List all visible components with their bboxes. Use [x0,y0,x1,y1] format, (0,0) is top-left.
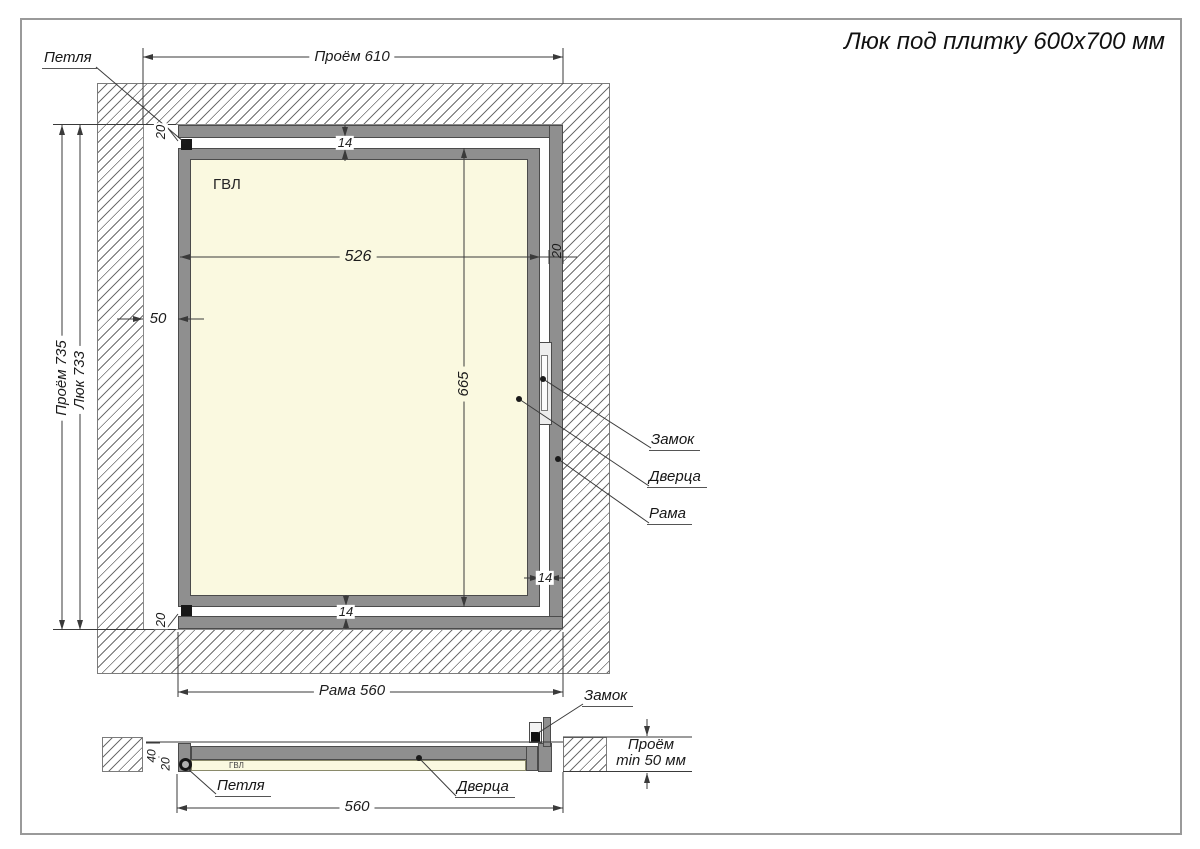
frame-bottom-bar [178,616,563,629]
section-callout-hinge: Петля [215,777,271,797]
callout-frame: Рама [647,505,692,525]
section-dim-total-depth: 40 [145,747,158,764]
dim-frame-width: Рама 560 [314,683,390,700]
section-dim-frame-width: 560 [339,799,374,816]
frame-top-bar [178,125,563,138]
section-dim-door-depth: 20 [159,755,172,772]
section-door-end-post [526,746,538,771]
lock-latch-plate [541,355,548,411]
hinge-bottom [181,605,192,616]
dim-door-width: 526 [340,248,377,266]
section-door-bar [191,746,538,760]
section-gvl-label: ГВЛ [229,761,244,770]
dim-side-gap: 50 [145,311,172,328]
section-dim-opening-depth-line2: min 50 мм [603,753,699,769]
drawing-title: Люк под плитку 600x700 мм [700,28,1165,56]
section-dim-opening-depth: Проём min 50 мм [603,737,699,769]
dim-opening-width: Проём 610 [309,49,394,66]
section-callout-lock: Замок [582,687,633,707]
dim-top-offset: 20 [154,123,168,141]
dim-top-gap: 14 [336,136,354,150]
dim-opening-height: Проём 735 [54,335,71,420]
dim-frame-profile-width: 20 [550,242,564,260]
dim-right-gap: 14 [536,571,554,585]
section-hinge [179,758,192,771]
callout-hinge: Петля [42,49,98,69]
dim-door-height: 665 [456,366,473,401]
drawing-sheet: Люк под плитку 600x700 мм [0,0,1200,849]
dim-bottom-gap: 14 [337,605,355,619]
callout-door: Дверца [647,468,707,488]
dim-hatch-height: Люк 733 [72,346,89,414]
section-wall-right [563,737,607,772]
hinge-top [181,139,192,150]
section-callout-door: Дверца [455,778,515,798]
section-frame-right-post [538,743,552,772]
section-lock-cylinder [531,732,540,742]
callout-lock: Замок [649,431,700,451]
section-wall-left [102,737,143,772]
gvl-panel-label: ГВЛ [213,176,241,193]
gvl-panel [190,159,528,596]
dim-bottom-offset: 20 [154,611,168,629]
section-lock-plate [543,717,551,747]
section-dim-opening-depth-line1: Проём [603,737,699,753]
